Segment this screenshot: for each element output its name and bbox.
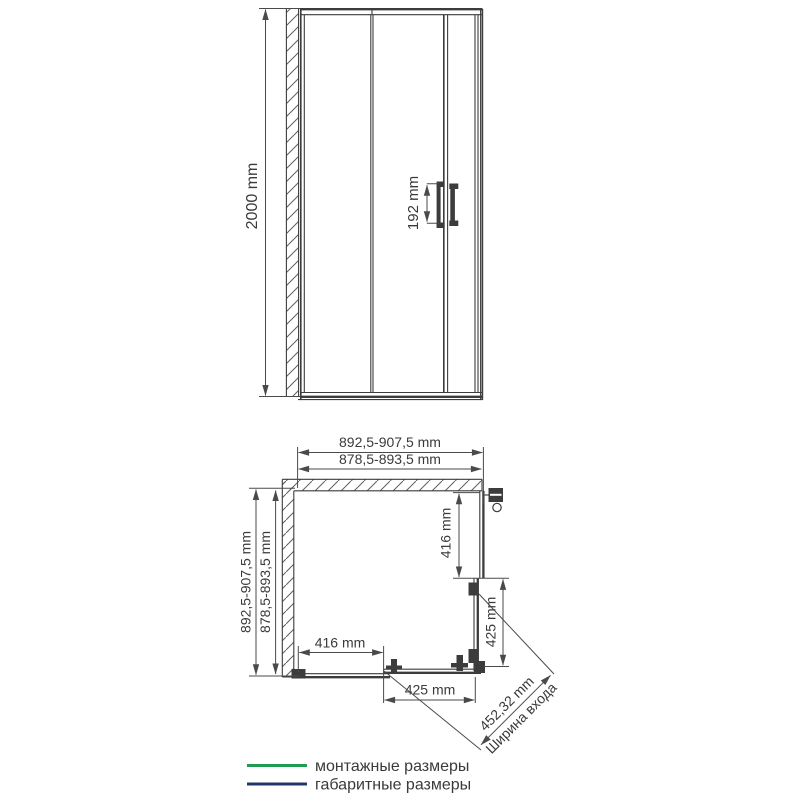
right-fixed-label: 416 mm: [438, 508, 454, 559]
legend-mounting-label: монтажные размеры: [315, 758, 469, 775]
frame-top-bottom-thin: [298, 15, 483, 400]
depth-mounting-label: 878,5-893,5 mm: [257, 531, 273, 633]
wall-hatch-front: [286, 8, 299, 397]
handle-dim-label: 192 mm: [405, 176, 422, 230]
bottom-door-label: 425 mm: [405, 682, 456, 698]
legend-overall-label: габаритные размеры: [315, 777, 471, 794]
width-mounting-label: 878,5-893,5 mm: [339, 451, 441, 467]
right-door-label: 425 mm: [483, 597, 499, 648]
handle-bar: [450, 185, 455, 224]
depth-overall-label: 892,5-907,5 mm: [238, 531, 254, 633]
bracket-knob: [493, 503, 501, 511]
door-roller: [457, 655, 464, 671]
entrance-width-dimension: 452,32 mm Ширина входа: [384, 594, 560, 757]
fixed-panel-edge-front: [371, 9, 373, 392]
left-wall-hatch: [282, 479, 294, 677]
handle-bar: [437, 183, 441, 227]
corner-connector: [474, 661, 485, 673]
right-dim-ticks: [453, 493, 509, 667]
right-side-dimensions: 416 mm 425 mm: [438, 493, 510, 667]
top-wall-hatch: [282, 479, 482, 491]
shower-enclosure-dimension-drawing: 2000 mm 192 mm: [0, 0, 800, 800]
technical-drawing-canvas: 2000 mm 192 mm: [0, 0, 800, 800]
frame-top-bottom-thick: [300, 9, 483, 397]
height-dim-label: 2000 mm: [244, 163, 261, 230]
legend: монтажные размеры габаритные размеры: [247, 758, 471, 794]
plan-view: 892,5-907,5 mm 878,5-893,5 mm 892,5-907,…: [238, 434, 560, 757]
frame-right-profile: [475, 9, 481, 400]
door-roller: [469, 583, 479, 596]
width-overall-label: 892,5-907,5 mm: [339, 434, 441, 450]
wall-section-front: [286, 8, 299, 397]
door-roller: [469, 649, 479, 663]
handle-dimension: 192 mm: [405, 176, 439, 230]
door-frame-front: [298, 9, 483, 400]
door-roller: [391, 659, 397, 672]
front-view: 2000 mm 192 mm: [244, 8, 483, 400]
bottom-fixed-label: 416 mm: [315, 635, 366, 651]
